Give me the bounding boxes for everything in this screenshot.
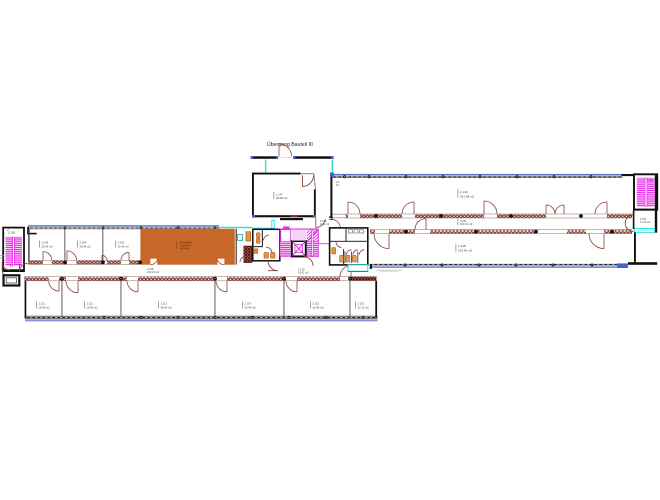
svg-text:25.46 m2: 25.46 m2 xyxy=(313,306,325,310)
svg-text:8.1: 8.1 xyxy=(336,184,340,187)
svg-text:12.10 m2: 12.10 m2 xyxy=(358,306,370,310)
svg-text:17.04 m2: 17.04 m2 xyxy=(640,221,651,224)
svg-text:2.1: 2.1 xyxy=(336,181,340,184)
svg-text:25.46 m2: 25.46 m2 xyxy=(42,245,54,249)
svg-text:2.114: 2.114 xyxy=(245,302,252,306)
svg-text:2.149: 2.149 xyxy=(460,190,468,194)
svg-text:25.46 m2: 25.46 m2 xyxy=(118,245,130,249)
svg-text:2.147: 2.147 xyxy=(276,193,283,197)
svg-text:25.46 m2: 25.46 m2 xyxy=(245,306,257,310)
svg-text:2.104: 2.104 xyxy=(80,241,87,245)
svg-text:2.111: 2.111 xyxy=(39,302,46,306)
svg-text:25.46 m2: 25.46 m2 xyxy=(80,245,92,249)
svg-text:160.01 m2: 160.01 m2 xyxy=(147,270,160,274)
svg-text:25.46 m2: 25.46 m2 xyxy=(87,306,99,310)
svg-text:2.113: 2.113 xyxy=(161,302,168,306)
svg-text:2.129: 2.129 xyxy=(298,268,305,272)
svg-text:2.150: 2.150 xyxy=(647,180,654,183)
svg-text:Übergang Bauteil III: Übergang Bauteil III xyxy=(267,141,313,148)
svg-text:2.112: 2.112 xyxy=(87,302,94,306)
svg-text:38.46 m2: 38.46 m2 xyxy=(161,306,173,310)
svg-text:2.103: 2.103 xyxy=(118,241,125,245)
svg-text:48.08 m2: 48.08 m2 xyxy=(276,196,288,200)
svg-text:25.46 m2: 25.46 m2 xyxy=(39,306,51,310)
svg-text:2.115: 2.115 xyxy=(313,302,320,306)
svg-text:102.01 m2: 102.01 m2 xyxy=(460,222,473,226)
svg-text:2.116: 2.116 xyxy=(358,302,365,306)
svg-text:2.136: 2.136 xyxy=(8,231,15,235)
svg-text:2.151: 2.151 xyxy=(640,218,647,221)
svg-text:16.61 m2: 16.61 m2 xyxy=(298,271,309,275)
svg-text:531.98 m2: 531.98 m2 xyxy=(460,195,475,199)
svg-text:2.146: 2.146 xyxy=(320,220,327,223)
svg-text:9.40 m2: 9.40 m2 xyxy=(320,223,330,226)
svg-text:533.46 m2: 533.46 m2 xyxy=(458,249,473,253)
svg-text:2.128: 2.128 xyxy=(147,267,154,271)
svg-text:2.148: 2.148 xyxy=(458,244,466,248)
svg-text:2.105: 2.105 xyxy=(42,241,49,245)
svg-text:2.152: 2.152 xyxy=(460,219,467,223)
